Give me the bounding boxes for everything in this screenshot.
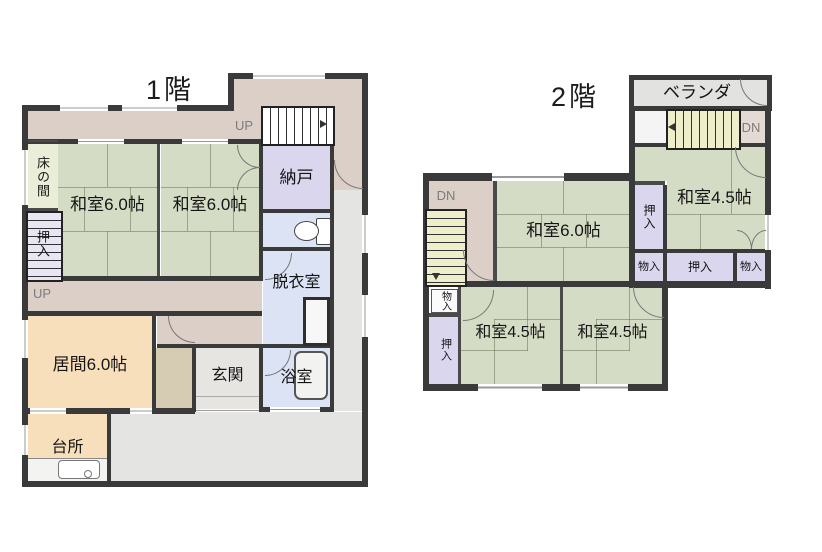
room-label: 和室6.0帖 xyxy=(497,219,630,241)
sink-icon xyxy=(58,460,100,479)
room-label: 台所 xyxy=(28,438,107,458)
corridor-1f-right xyxy=(334,190,362,411)
wall xyxy=(157,144,160,276)
wall xyxy=(152,316,156,412)
tatami-line xyxy=(107,231,108,276)
tatami-line xyxy=(210,144,211,187)
room-label: 玄関 xyxy=(196,366,259,386)
window xyxy=(478,384,542,391)
wall xyxy=(259,209,334,213)
genkan-step-line xyxy=(196,396,259,397)
window xyxy=(492,173,564,181)
floor1-title: 1階 xyxy=(125,75,215,105)
window xyxy=(362,295,368,337)
window xyxy=(78,139,124,144)
room-label: 和室6.0帖 xyxy=(161,193,259,215)
tatami-line xyxy=(700,214,701,250)
stair-arrow xyxy=(432,273,440,280)
up-label: UP xyxy=(230,117,258,133)
room-label: 和室6.0帖 xyxy=(58,193,157,215)
room-label: 浴室 xyxy=(263,368,330,388)
closet-label: 物入 xyxy=(635,259,663,275)
window xyxy=(253,73,325,79)
window xyxy=(22,150,28,205)
room-label: 和室4.5帖 xyxy=(664,186,765,208)
wall xyxy=(28,276,262,281)
wall xyxy=(362,73,368,487)
window xyxy=(122,105,177,111)
room-label: 納戸 xyxy=(263,166,330,188)
tatami-line xyxy=(563,181,564,214)
tatami-line xyxy=(596,319,662,320)
up-label: UP xyxy=(26,285,58,301)
tokonoma-label: 床の間 xyxy=(29,145,56,209)
room-label: 脱衣室 xyxy=(263,273,330,293)
laundry-space xyxy=(303,297,330,346)
floor2-title: 2階 xyxy=(535,82,615,112)
closet-label: 物入 xyxy=(431,288,458,313)
room-label: 居間6.0帖 xyxy=(28,353,152,375)
hallway-1f-bottom xyxy=(28,281,262,311)
window xyxy=(130,408,152,414)
wall xyxy=(28,140,58,142)
window xyxy=(270,407,320,412)
room-label: 和室4.5帖 xyxy=(563,323,662,343)
tatami-line xyxy=(497,214,630,215)
tatami-line xyxy=(58,187,157,188)
wall xyxy=(635,181,665,185)
hallway-1f-top xyxy=(28,111,234,139)
wall xyxy=(330,139,334,411)
toilet-icon xyxy=(294,221,319,241)
closet-label: 押入 xyxy=(431,324,459,376)
closet-1f-tan xyxy=(156,348,192,408)
sink-drain-icon xyxy=(84,470,92,478)
wall xyxy=(429,313,460,317)
tatami-line xyxy=(563,247,564,281)
window xyxy=(580,384,628,391)
wall xyxy=(107,412,111,487)
wall xyxy=(765,109,771,289)
closet-label: 押入 xyxy=(635,192,663,242)
tatami-line xyxy=(667,214,765,215)
room-label: 和室4.5帖 xyxy=(461,323,560,343)
tatami-line xyxy=(107,144,108,187)
entrance-sliding-door xyxy=(196,409,259,412)
stair-arrow xyxy=(320,120,327,128)
wall xyxy=(423,384,668,391)
closet-label: 物入 xyxy=(737,259,765,275)
dn-label: DN xyxy=(430,187,462,203)
wall xyxy=(629,249,771,253)
stairs-2f-dn-right xyxy=(666,109,741,150)
window xyxy=(30,408,66,414)
exterior-1f-bottom xyxy=(111,412,362,481)
wall xyxy=(22,311,262,316)
floor-plan-canvas: 1階 xyxy=(0,0,822,552)
stair-arrow xyxy=(668,123,675,131)
window xyxy=(60,105,108,111)
oshiire-label: 押入 xyxy=(29,218,56,270)
window xyxy=(182,139,228,144)
dn-label: DN xyxy=(737,119,765,135)
closet-label: 押入 xyxy=(667,259,733,275)
tatami-line xyxy=(210,231,211,276)
wall xyxy=(22,481,368,487)
window xyxy=(362,215,368,253)
tatami-line xyxy=(494,319,560,320)
wall xyxy=(157,344,262,348)
stair-landing-2f xyxy=(635,111,666,146)
wall xyxy=(259,247,334,251)
